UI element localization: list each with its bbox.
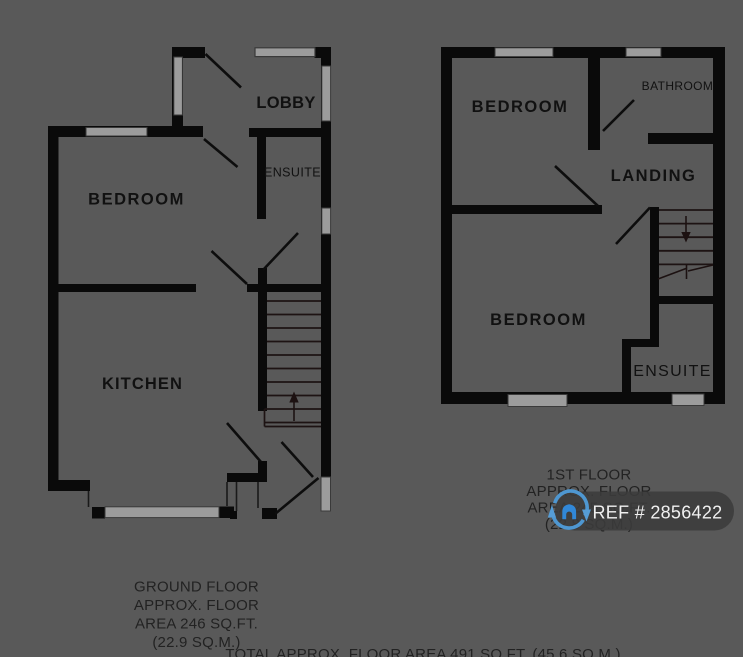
svg-text:BEDROOM: BEDROOM bbox=[472, 98, 569, 116]
svg-text:TOTAL APPROX. FLOOR AREA 491 S: TOTAL APPROX. FLOOR AREA 491 SQ.FT. (45.… bbox=[225, 646, 620, 657]
svg-text:BATHROOM: BATHROOM bbox=[642, 79, 714, 93]
svg-text:BEDROOM: BEDROOM bbox=[88, 191, 185, 209]
svg-text:BEDROOM: BEDROOM bbox=[490, 311, 587, 329]
svg-text:AREA 246 SQ.FT.: AREA 246 SQ.FT. bbox=[135, 616, 258, 633]
svg-text:GROUND FLOOR: GROUND FLOOR bbox=[134, 579, 259, 596]
svg-text:1ST FLOOR: 1ST FLOOR bbox=[547, 467, 632, 484]
svg-text:REF # 2856422: REF # 2856422 bbox=[593, 503, 723, 523]
svg-text:ENSUITE: ENSUITE bbox=[633, 363, 711, 380]
svg-text:APPROX. FLOOR: APPROX. FLOOR bbox=[134, 597, 259, 614]
svg-text:ENSUITE: ENSUITE bbox=[264, 166, 321, 180]
svg-text:LOBBY: LOBBY bbox=[256, 94, 315, 112]
svg-text:KITCHEN: KITCHEN bbox=[102, 375, 183, 393]
svg-text:LANDING: LANDING bbox=[611, 167, 697, 185]
